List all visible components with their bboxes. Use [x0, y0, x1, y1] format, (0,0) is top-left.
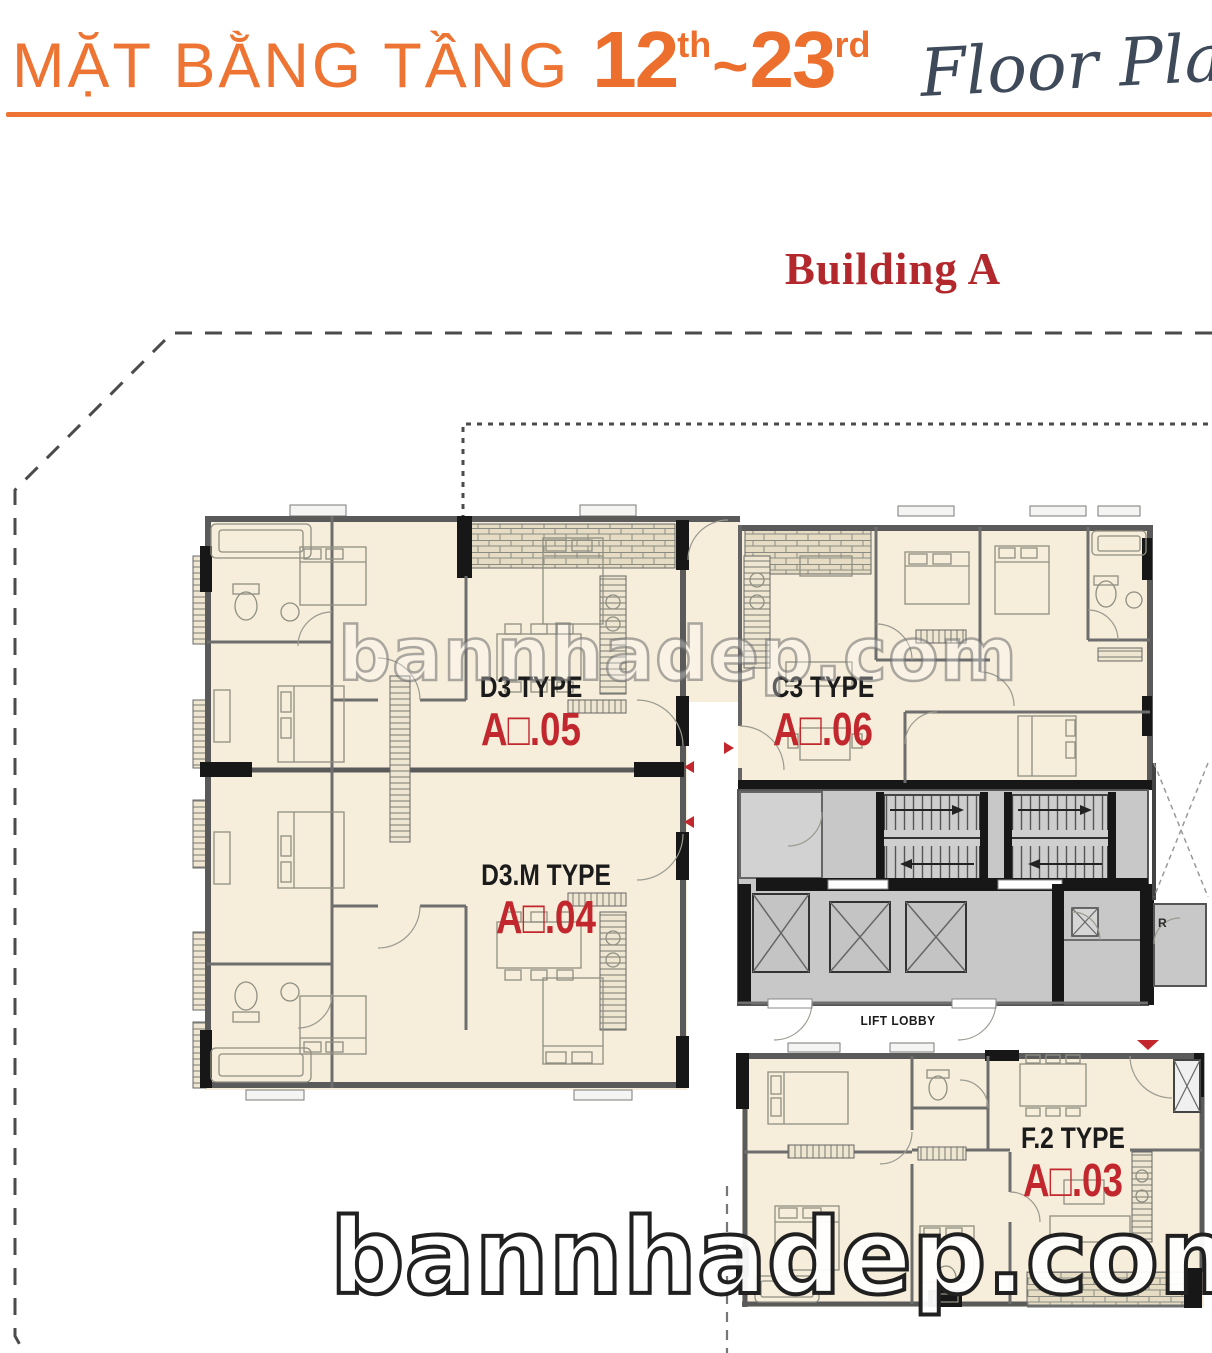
floor-plan-page: MẶT BẰNG TẦNG 12th~23rd Floor Plan Build… [0, 0, 1212, 1353]
central-wardrobe [390, 676, 410, 842]
unit-d3-a05-and-d3m-a04-plan [193, 505, 740, 1100]
header-underline [6, 112, 1212, 117]
title-vietnamese: MẶT BẰNG TẦNG [12, 30, 570, 102]
lift-shaft [830, 902, 890, 972]
floor-from: 12 [592, 15, 677, 104]
unit-number: A□.06 [773, 706, 873, 752]
watermark-middle: bannhadep.com [338, 612, 1018, 698]
lift-shaft [906, 902, 966, 972]
unit-label-a04: D3.M TYPE A□.04 [467, 861, 625, 940]
building-title: Building A [785, 243, 1001, 295]
loggia-balcony [463, 524, 675, 568]
range-separator: ~ [712, 32, 748, 101]
floor-from-ordinal: th [677, 24, 711, 65]
lift-shaft [753, 894, 809, 972]
floor-to: 23 [749, 15, 834, 104]
lift-lobby-label: LIFT LOBBY [860, 1013, 935, 1028]
unit-number: A□.05 [481, 706, 581, 752]
staircase [884, 795, 980, 879]
unit-type-label: F.2 TYPE [1021, 1124, 1125, 1154]
title-english-script: Floor Plan [919, 17, 1212, 112]
unit-number: A□.04 [483, 894, 610, 940]
refuse-room-label: R [1158, 916, 1167, 930]
watermark-bottom: bannhadep.com [330, 1196, 1212, 1318]
core-plan [738, 790, 1154, 1040]
floor-to-ordinal: rd [834, 24, 870, 65]
staircase [1012, 795, 1108, 879]
floor-range: 12th~23rd [592, 14, 870, 106]
unit-label-a03: F.2 TYPE A□.03 [1010, 1124, 1137, 1203]
core-top-wall [738, 780, 1152, 790]
unit-type-label: D3.M TYPE [481, 861, 611, 891]
void-shaft-cross [1154, 763, 1208, 986]
lift-shaft [1174, 1060, 1200, 1112]
unit-entry-arrow-icon [724, 742, 734, 754]
main-entrance-arrow-icon [1137, 1040, 1159, 1050]
page-header: MẶT BẰNG TẦNG 12th~23rd Floor Plan [12, 14, 1212, 106]
